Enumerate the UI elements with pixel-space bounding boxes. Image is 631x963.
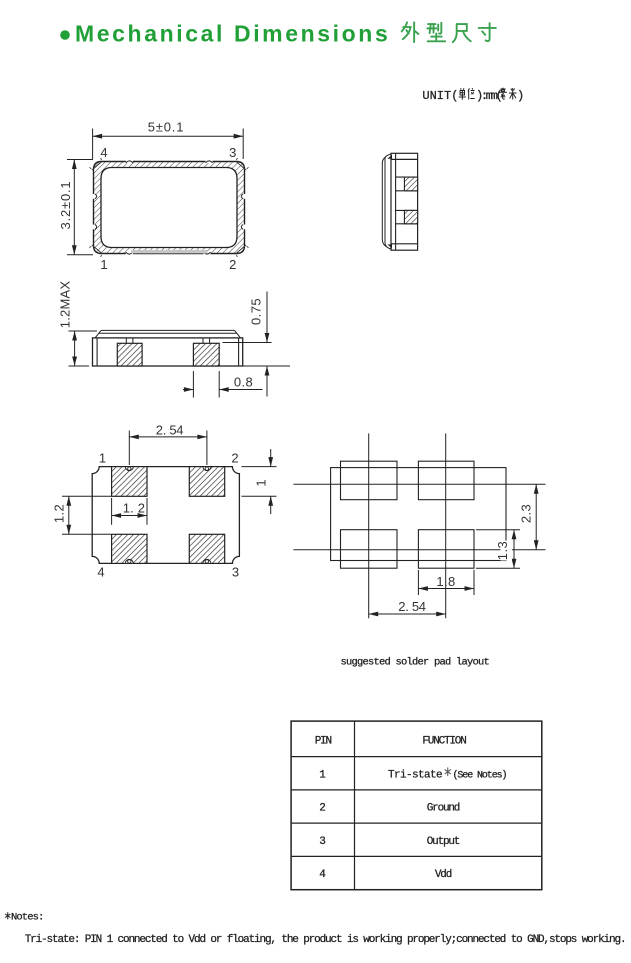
- svg-text:1: 1: [100, 257, 107, 272]
- svg-text:2. 54: 2. 54: [398, 599, 425, 614]
- svg-text:2: 2: [319, 803, 325, 815]
- svg-text:2.3: 2.3: [519, 504, 534, 523]
- svg-text:1: 1: [319, 769, 326, 781]
- svg-text:1.2: 1.2: [52, 504, 67, 523]
- svg-text:0.75: 0.75: [249, 298, 264, 325]
- svg-text:2: 2: [229, 257, 236, 272]
- svg-text:3: 3: [319, 836, 325, 848]
- svg-text:Tri-state: PIN 1 connected to: Tri-state: PIN 1 connected to Vdd or flo…: [25, 934, 626, 946]
- svg-text:Notes:: Notes:: [11, 912, 43, 924]
- svg-text:3: 3: [232, 564, 239, 579]
- svg-text:(See Notes): (See Notes): [453, 769, 507, 781]
- svg-text:0.8: 0.8: [234, 375, 253, 390]
- svg-text:):mm(: ):mm(: [476, 89, 502, 103]
- svg-text:3: 3: [229, 145, 236, 160]
- svg-text:Output: Output: [427, 836, 460, 848]
- svg-text:): ): [517, 89, 524, 103]
- svg-text:1.3: 1.3: [495, 541, 510, 561]
- svg-text:1. 2: 1. 2: [123, 501, 145, 516]
- svg-text:UNIT(: UNIT(: [422, 89, 458, 103]
- svg-text:3.2±0.1: 3.2±0.1: [58, 181, 73, 230]
- svg-text:4: 4: [319, 869, 326, 881]
- svg-text:Vdd: Vdd: [435, 869, 452, 881]
- svg-text:suggested solder pad layout: suggested solder pad layout: [341, 657, 490, 669]
- svg-text:2: 2: [231, 451, 238, 466]
- svg-text:Mechanical Dimensions: Mechanical Dimensions: [75, 21, 390, 47]
- svg-text:PIN: PIN: [315, 736, 332, 748]
- svg-text:2. 54: 2. 54: [156, 423, 183, 438]
- svg-text:Ground: Ground: [427, 803, 460, 815]
- svg-text:5±0.1: 5±0.1: [148, 120, 184, 135]
- svg-text:4: 4: [97, 564, 104, 579]
- svg-text:4: 4: [100, 145, 107, 160]
- svg-text:1: 1: [254, 479, 269, 486]
- svg-text:1.2MAX: 1.2MAX: [58, 281, 73, 329]
- svg-text:FUNCTION: FUNCTION: [422, 736, 466, 748]
- svg-text:1: 1: [99, 451, 106, 466]
- svg-text:1.8: 1.8: [436, 574, 455, 589]
- svg-text:Tri-state: Tri-state: [388, 769, 442, 781]
